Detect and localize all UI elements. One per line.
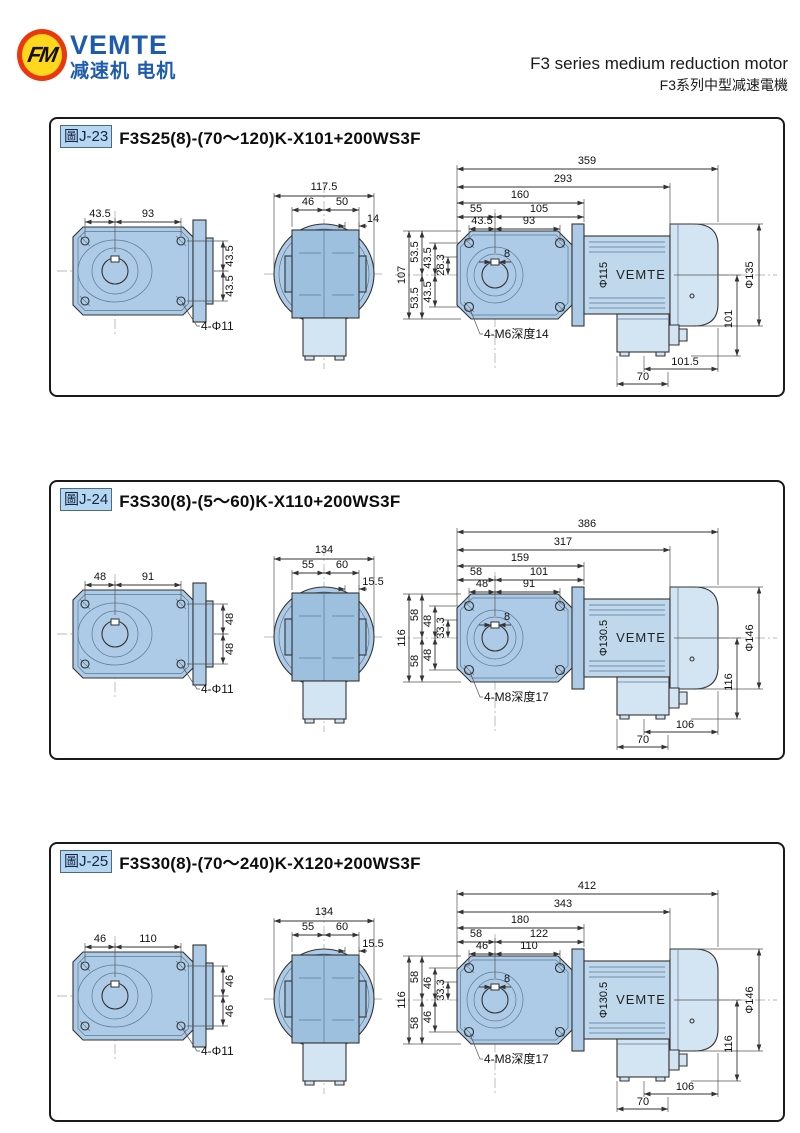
side-junction-box xyxy=(303,681,346,719)
dim-chain2: 122 xyxy=(530,928,548,940)
brand-logo: FM xyxy=(17,29,67,81)
side-junction-box xyxy=(303,318,346,356)
dim-box-bottom: 70 xyxy=(637,734,649,746)
dim-body-length: 317 xyxy=(554,536,572,548)
dim-main-h-half1: 58 xyxy=(409,609,421,621)
dim-main-h-hole2: 43.5 xyxy=(422,281,434,302)
figure-panel-j25: 圖J-25 F3S30(8)-(70～240)K-X120+200WS3F xyxy=(49,842,785,1122)
dim-chain1: 58 xyxy=(470,566,482,578)
series-title-en: F3 series medium reduction motor xyxy=(530,54,788,74)
front-hole-note: 4-Φ11 xyxy=(201,1044,234,1058)
front-flange xyxy=(193,220,206,322)
series-title: F3 series medium reduction motor F3系列中型减… xyxy=(530,54,788,95)
motor-brand-label: VEMTE xyxy=(616,630,666,645)
model-title: F3S30(8)-(70～240)K-X120+200WS3F xyxy=(119,849,420,874)
dim-total-length: 386 xyxy=(578,518,596,530)
logo-monogram: FM xyxy=(26,42,58,68)
dim-chain3: 43.5 xyxy=(471,215,492,227)
dim-gear-length: 159 xyxy=(511,552,529,564)
dim-main-h-hole1: 43.5 xyxy=(422,247,434,268)
dim-chain3: 46 xyxy=(476,940,488,952)
dim-keyway: 8 xyxy=(504,611,510,623)
cable-gland xyxy=(669,325,687,345)
dim-chain3: 48 xyxy=(476,578,488,590)
dim-box-height: 101 xyxy=(723,310,735,328)
side-gearbox xyxy=(292,955,359,1043)
dim-front-right1: 43.5 xyxy=(224,245,236,266)
dim-front-top1: 43.5 xyxy=(89,208,110,220)
motor-brand-label: VEMTE xyxy=(616,267,666,282)
dim-main-h-hole1: 48 xyxy=(422,615,434,627)
dim-side-offset: 14 xyxy=(367,213,379,225)
catalog-page: { "header": { "logo_monogram": "FM", "br… xyxy=(0,0,800,1133)
front-hole-note: 4-Φ11 xyxy=(201,682,234,696)
dim-motor-dia: Φ115 xyxy=(598,262,610,288)
dim-chain2: 101 xyxy=(530,566,548,578)
dim-main-h-offset: 28.3 xyxy=(435,254,447,275)
page-header: FM VEMTE 减速机 电机 F3 series medium reducti… xyxy=(0,0,800,110)
main-view: 107 53.5 53.5 43.5 43.5 28.3 8 Φ115 VEMT xyxy=(395,155,777,387)
front-flange xyxy=(193,583,206,685)
drawing-canvas: 46 110 46 46 4-Φ11 134 xyxy=(51,844,783,1120)
drawing-canvas: 48 91 48 48 4-Φ11 134 xyxy=(51,482,783,758)
figure-panel-j23: 圖J-23 F3S25(8)-(70～120)K-X101+200WS3F xyxy=(49,117,785,397)
dim-motor-dia: Φ130.5 xyxy=(598,982,610,1018)
dim-main-h-total: 116 xyxy=(396,991,408,1009)
dim-side-width: 134 xyxy=(315,906,333,918)
front-view: 43.5 93 43.5 43.5 4-Φ11 xyxy=(57,208,236,335)
dim-box-width: 101.5 xyxy=(671,356,699,368)
dim-chain4: 93 xyxy=(523,215,535,227)
dim-main-h-half2: 53.5 xyxy=(409,287,421,308)
panel-title-row: 圖J-23 F3S25(8)-(70～120)K-X101+200WS3F xyxy=(60,124,421,149)
side-view: 117.5 46 50 14 xyxy=(264,181,384,369)
dim-main-h-offset: 33.3 xyxy=(435,979,447,1000)
dim-side-sub2: 60 xyxy=(336,559,348,571)
front-hole-note: 4-Φ11 xyxy=(201,319,234,333)
side-gearbox xyxy=(292,230,359,318)
tap-note: 4-M8深度17 xyxy=(484,1051,549,1066)
panel-title-row: 圖J-25 F3S30(8)-(70～240)K-X120+200WS3F xyxy=(60,849,421,874)
motor-brand-label: VEMTE xyxy=(616,992,666,1007)
tap-note: 4-M6深度14 xyxy=(484,326,549,341)
front-view: 46 110 46 46 4-Φ11 xyxy=(57,933,236,1060)
brand-subtitle: 减速机 电机 xyxy=(70,56,176,83)
dim-motor-dia: Φ130.5 xyxy=(598,620,610,656)
dim-total-length: 359 xyxy=(578,155,596,167)
dim-side-width: 117.5 xyxy=(311,181,338,193)
dim-gear-length: 180 xyxy=(511,914,529,926)
front-view: 48 91 48 48 4-Φ11 xyxy=(57,571,236,698)
dim-fan-dia: Φ146 xyxy=(744,624,756,651)
dim-main-h-hole2: 46 xyxy=(422,1011,434,1023)
dim-front-right1: 46 xyxy=(224,975,236,987)
figure-tag: 圖J-25 xyxy=(60,850,112,873)
dim-main-h-total: 107 xyxy=(396,266,408,284)
front-flange xyxy=(193,945,206,1047)
dim-main-h-half1: 58 xyxy=(409,971,421,983)
dim-keyway: 8 xyxy=(504,973,510,985)
dim-front-top1: 48 xyxy=(94,571,106,583)
junction-box xyxy=(617,677,669,715)
cable-gland xyxy=(669,688,687,708)
dim-keyway: 8 xyxy=(504,248,510,260)
dim-front-right1: 48 xyxy=(224,613,236,625)
main-view: 116 58 58 46 46 33.3 8 Φ130.5 VEMTE xyxy=(395,880,777,1112)
motor-flange xyxy=(572,224,584,326)
dim-box-bottom: 70 xyxy=(637,371,649,383)
main-view: 116 58 58 48 48 33.3 8 Φ130.5 VEMTE xyxy=(395,518,777,750)
dim-front-top2: 91 xyxy=(142,571,154,583)
dim-chain1: 55 xyxy=(470,203,482,215)
figure-panel-j24: 圖J-24 F3S30(8)-(5～60)K-X110+200WS3F xyxy=(49,480,785,760)
dim-total-length: 412 xyxy=(578,880,596,892)
dim-fan-dia: Φ135 xyxy=(744,261,756,288)
dim-box-bottom: 70 xyxy=(637,1096,649,1108)
dim-front-top2: 110 xyxy=(139,933,157,945)
model-title: F3S30(8)-(5～60)K-X110+200WS3F xyxy=(119,487,400,512)
dim-main-h-half2: 58 xyxy=(409,1017,421,1029)
dim-chain2: 105 xyxy=(530,203,548,215)
side-view: 134 55 60 15.5 xyxy=(264,906,384,1094)
front-body xyxy=(73,590,193,678)
dim-box-height: 116 xyxy=(723,673,735,691)
dim-main-h-hole2: 48 xyxy=(422,649,434,661)
cable-gland xyxy=(669,1050,687,1070)
motor-flange xyxy=(572,587,584,689)
dim-front-top1: 46 xyxy=(94,933,106,945)
side-gearbox xyxy=(292,593,359,681)
dim-body-length: 293 xyxy=(554,173,572,185)
dim-front-right2: 46 xyxy=(224,1005,236,1017)
dim-chain4: 110 xyxy=(520,940,538,952)
dim-main-h-hole1: 46 xyxy=(422,977,434,989)
dim-side-width: 134 xyxy=(315,544,333,556)
dim-body-length: 343 xyxy=(554,898,572,910)
dim-box-width: 106 xyxy=(676,1081,694,1093)
tap-note: 4-M8深度17 xyxy=(484,689,549,704)
dim-side-sub1: 55 xyxy=(302,559,314,571)
side-view: 134 55 60 15.5 xyxy=(264,544,384,732)
dim-gear-length: 160 xyxy=(511,189,529,201)
series-title-zh: F3系列中型减速電機 xyxy=(530,75,788,95)
front-body xyxy=(73,952,193,1040)
dim-side-sub2: 50 xyxy=(336,196,348,208)
dim-side-offset: 15.5 xyxy=(362,938,383,950)
dim-main-h-half1: 53.5 xyxy=(409,241,421,262)
dim-main-h-offset: 33.3 xyxy=(435,617,447,638)
dim-fan-dia: Φ146 xyxy=(744,986,756,1013)
dim-box-width: 106 xyxy=(676,719,694,731)
motor-flange xyxy=(572,949,584,1051)
dim-front-top2: 93 xyxy=(142,208,154,220)
junction-box xyxy=(617,1039,669,1077)
dim-side-offset: 15.5 xyxy=(362,576,383,588)
dim-side-sub1: 46 xyxy=(302,196,314,208)
dim-side-sub1: 55 xyxy=(302,921,314,933)
dim-chain1: 58 xyxy=(470,928,482,940)
dim-main-h-half2: 58 xyxy=(409,655,421,667)
panel-title-row: 圖J-24 F3S30(8)-(5～60)K-X110+200WS3F xyxy=(60,487,400,512)
front-body xyxy=(73,227,193,315)
dim-side-sub2: 60 xyxy=(336,921,348,933)
junction-box xyxy=(617,314,669,352)
figure-tag: 圖J-24 xyxy=(60,488,112,511)
dim-front-right2: 48 xyxy=(224,643,236,655)
drawing-canvas: 43.5 93 43.5 43.5 4-Φ11 117.5 xyxy=(51,119,783,395)
model-title: F3S25(8)-(70～120)K-X101+200WS3F xyxy=(119,124,420,149)
dim-front-right2: 43.5 xyxy=(224,275,236,296)
dim-chain4: 91 xyxy=(523,578,535,590)
dim-box-height: 116 xyxy=(723,1035,735,1053)
dim-main-h-total: 116 xyxy=(396,629,408,647)
figure-tag: 圖J-23 xyxy=(60,125,112,148)
side-junction-box xyxy=(303,1043,346,1081)
